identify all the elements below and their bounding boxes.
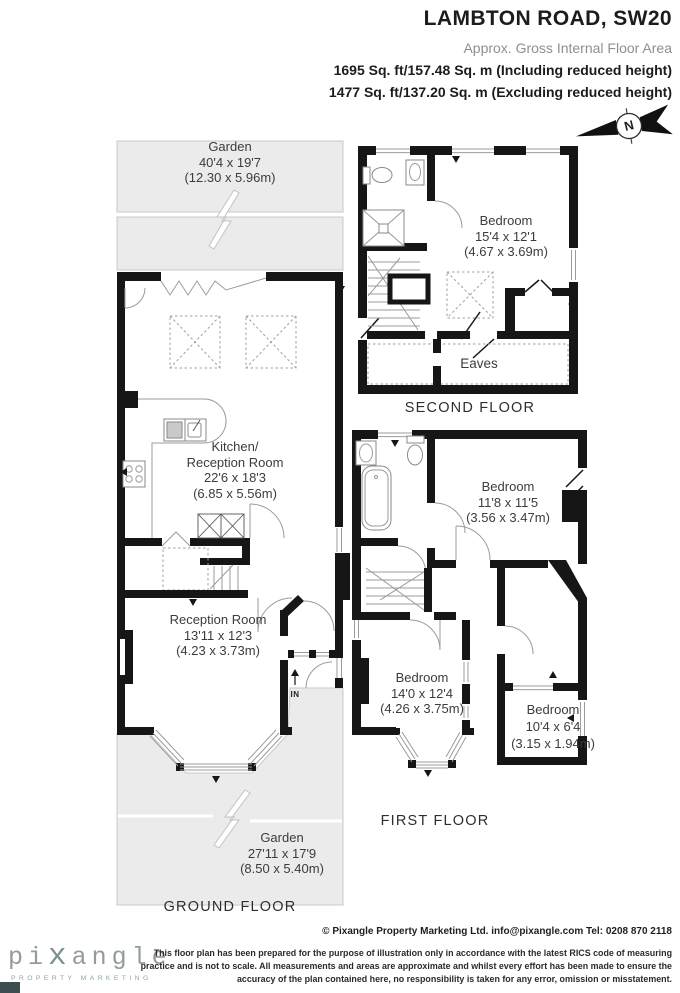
ground-floor-plan [110,135,350,935]
room-label-bedroom-back: Bedroom 10'4 x 6'4 (3.15 x 1.94m) [463,701,643,752]
rooflight-icon [447,272,493,318]
room-label-kitchen-reception: Kitchen/ Reception Room 22'6 x 18'3 (6.8… [145,439,325,501]
area-including: 1695 Sq. ft/157.48 Sq. m (Including redu… [329,62,672,78]
ground-floor-label: GROUND FLOOR [110,899,350,915]
stairs [210,565,238,590]
toilet-icon [363,167,392,184]
floorplan-page: LAMBTON ROAD, SW20 Approx. Gross Interna… [0,0,680,993]
shower-icon [363,210,404,246]
disclaimer-text: This floor plan has been prepared for th… [127,947,672,985]
copyright-line: © Pixangle Property Marketing Ltd. info@… [322,926,672,937]
rooflight-icon [246,316,296,368]
bay-window [392,728,474,777]
room-label-eaves: Eaves [419,356,539,372]
header: LAMBTON ROAD, SW20 Approx. Gross Interna… [329,7,672,100]
rooflight-icon [170,316,220,368]
kitchen-sink-icon [164,419,206,441]
toilet-icon [407,436,424,465]
room-label-bedroom-second: Bedroom 15'4 x 12'1 (4.67 x 3.69m) [416,213,596,260]
entrance-label: IN [286,690,304,699]
bathtub-icon [362,466,391,530]
room-label-garden-top: Garden 40'4 x 19'7 (12.30 x 5.96m) [140,139,320,186]
sink-icon [356,441,376,465]
second-floor-label: SECOND FLOOR [350,400,590,416]
entrance-arrow-icon [291,669,299,685]
corner-decoration [0,982,20,993]
room-label-bedroom-middle: Bedroom 11'8 x 11'5 (3.56 x 3.47m) [418,479,598,526]
sink-icon [406,160,424,185]
page-title: LAMBTON ROAD, SW20 [329,7,672,31]
room-label-garden-bottom: Garden 27'11 x 17'9 (8.50 x 5.40m) [192,830,372,877]
stairs [366,568,424,610]
room-label-reception: Reception Room 13'11 x 12'3 (4.23 x 3.73… [128,612,308,659]
wardrobe [505,280,578,331]
skylight-box [198,514,244,538]
first-floor-label: FIRST FLOOR [350,813,520,829]
header-subtitle: Approx. Gross Internal Floor Area [329,40,672,56]
